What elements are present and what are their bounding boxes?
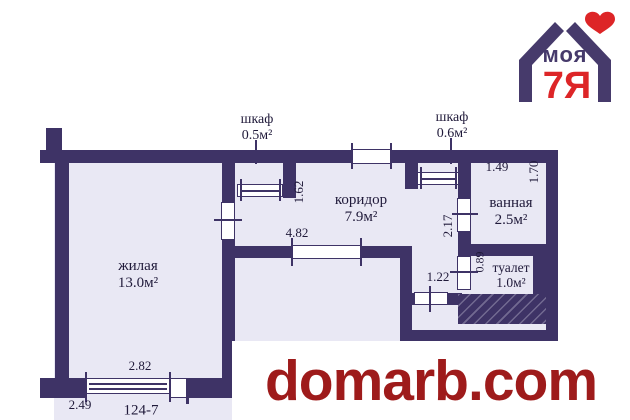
room-label-zhilaya: жилая 13.0м² [118,258,158,292]
entrance-door-opening [352,149,392,164]
dim-2-82: 2.82 [129,358,152,374]
room-label-closet2: шкаф 0.6м² [436,110,469,141]
balcony-door-handle [186,378,189,404]
dim-2-17: 2.17 [440,215,456,238]
room-label-tualet: туалет 1.0м² [492,260,529,290]
room-area: 13.0м² [118,275,158,292]
room-area: 0.6м² [436,126,469,142]
dim-1-22: 1.22 [427,269,450,285]
room-label-closet1: шкаф 0.5м² [241,112,274,143]
tick [169,372,171,402]
room-name: шкаф [436,110,469,126]
wall-right [546,150,558,342]
dim-2-49: 2.49 [69,397,92,413]
floor-plan-image: жилая 13.0м² коридор 7.9м² ванная 2.5м² … [0,0,630,420]
room-name: коридор [335,192,387,209]
room-area: 7.9м² [335,209,387,226]
room-area: 2.5м² [489,212,532,229]
room-name: туалет [492,260,529,275]
tick [429,286,431,312]
tick [240,179,242,201]
zhilaya-door-opening [221,202,235,240]
dim-1-70: 1.70 [526,161,542,184]
room-name: ванная [489,195,532,212]
dim-4-82: 4.82 [286,225,309,241]
room-name: жилая [118,258,158,275]
vannaya-door-opening [457,198,471,232]
koridor-door-opening [292,245,362,259]
tick [351,143,353,169]
tick [279,179,281,201]
tick [420,167,422,189]
tick [455,167,457,189]
window [86,378,170,394]
wall-koridor-right-a [458,163,471,198]
tick [390,143,392,169]
logo-word-main: 7Я [543,65,591,107]
dim-0-89: 0.89 [473,252,488,273]
wall-top-left [40,150,352,163]
wall-left [55,150,69,398]
room-name: шкаф [241,112,274,128]
watermark-box: domarb.com [232,341,630,420]
lower-door-opening [414,292,448,305]
dim-1-62: 1.62 [291,181,307,204]
closet1-door [237,184,283,197]
tick [214,219,242,221]
wall-top-stub [46,128,62,152]
logo-word-top: моя [543,42,588,67]
room-area: 0.5м² [241,128,274,144]
watermark-text: domarb.com [265,348,597,414]
heart-icon [585,12,615,34]
closet1-leader-line [255,140,257,164]
room-label-vannaya: ванная 2.5м² [489,195,532,229]
wall-zhilaya-right-upper [222,163,235,202]
wall-bottom-left [40,378,86,398]
wall-middle-vertical [400,246,412,342]
wall-tualet-right [533,256,546,294]
room-area: 1.0м² [492,275,529,290]
room-label-koridor: коридор 7.9м² [335,192,387,226]
agency-logo: моя 7Я [503,4,627,114]
wall-vannaya-bottom [458,244,546,256]
closet2-door [417,172,459,185]
apartment-number: 124-7 [124,403,159,420]
closet2-leader-line [450,138,452,164]
vent-shaft [458,294,546,324]
tick [291,238,293,266]
dim-1-49: 1.49 [486,159,509,175]
tick [360,238,362,266]
tualet-door-opening [457,256,471,290]
